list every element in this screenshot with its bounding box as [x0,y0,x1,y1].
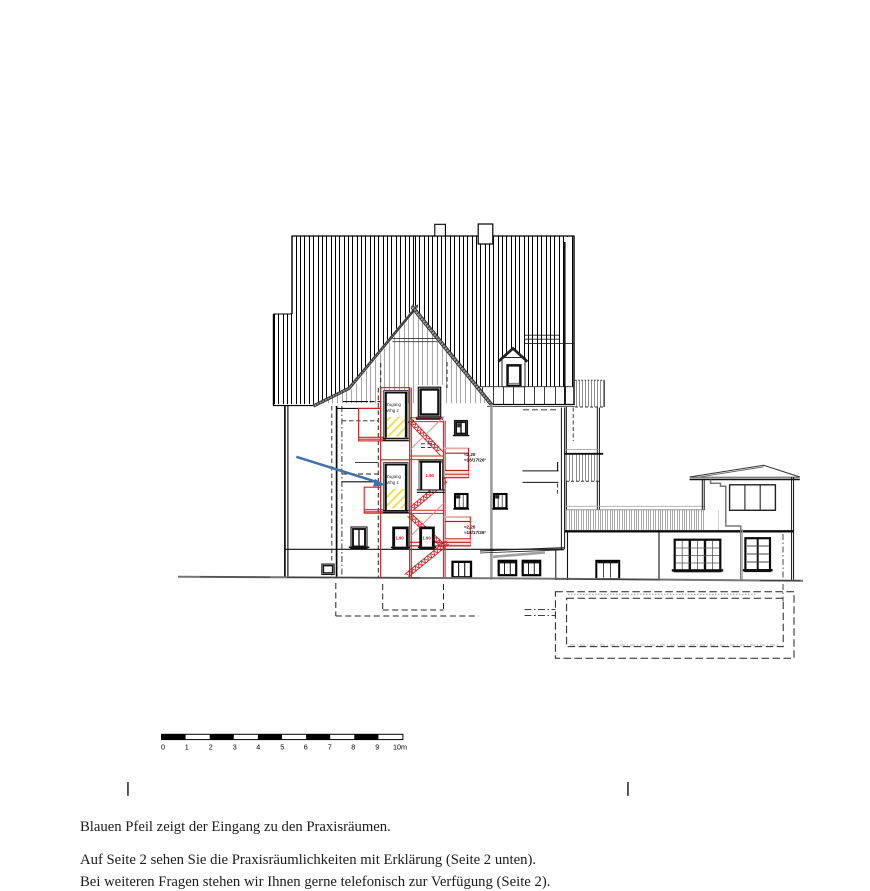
svg-text:2: 2 [209,743,213,752]
svg-text:≈2,20: ≈2,20 [464,525,476,530]
svg-text:9: 9 [375,743,379,752]
svg-text:6: 6 [304,743,308,752]
svg-text:5: 5 [280,743,284,752]
svg-text:0: 0 [161,743,165,752]
svg-text:1.90: 1.90 [396,536,405,541]
svg-text:1.90: 1.90 [426,473,435,478]
svg-text:8: 8 [351,743,355,752]
svg-text:Zugang: Zugang [386,402,401,407]
svg-text:1.90: 1.90 [423,536,432,541]
svg-text:≈2,20: ≈2,20 [464,452,476,457]
svg-text:Zugang: Zugang [386,474,401,479]
svg-text:≈18/17/26°: ≈18/17/26° [464,530,486,535]
svg-text:7: 7 [328,743,332,752]
svg-text:4: 4 [256,743,260,752]
svg-text:10m: 10m [393,743,407,752]
svg-text:Whg 1: Whg 1 [386,480,399,485]
svg-text:Whg 2: Whg 2 [386,408,399,413]
svg-text:1: 1 [185,743,189,752]
svg-text:≈18/17/26°: ≈18/17/26° [464,457,486,462]
svg-text:3: 3 [233,743,237,752]
